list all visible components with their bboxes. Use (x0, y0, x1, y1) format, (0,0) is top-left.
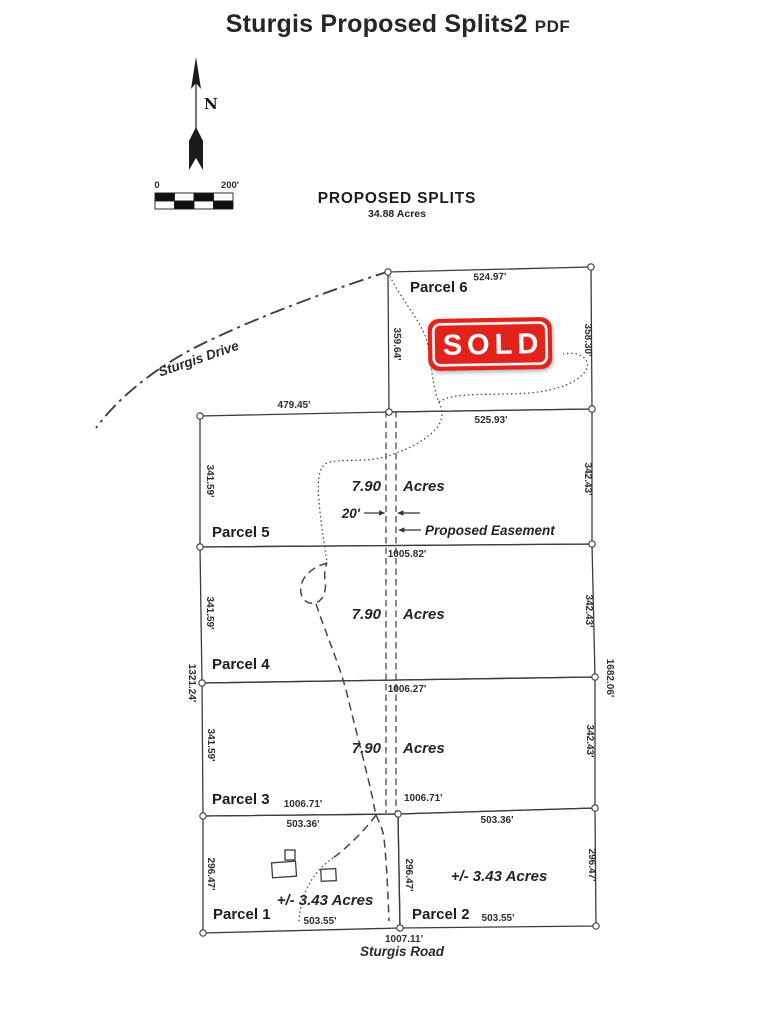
sturgis-road-label: Sturgis Road (360, 944, 445, 959)
scale-segment (194, 193, 214, 201)
parcel-2-east-dim: 296.47' (586, 849, 597, 882)
parcel-3-west-dim: 341.59' (205, 729, 216, 762)
scale-segment (194, 201, 214, 209)
parcel-5-west-dim: 341.59' (204, 465, 215, 498)
parcel-1-west-dim: 296.47' (205, 858, 216, 891)
corner-marker (397, 925, 403, 931)
corner-marker (588, 264, 594, 270)
parcel-3-label: Parcel 3 (212, 791, 270, 808)
north-arrow: N (189, 57, 218, 170)
scale-end-label: 200' (221, 180, 239, 191)
plat-total-acreage: 34.88 Acres (368, 208, 426, 220)
corner-marker (589, 406, 595, 412)
driveway-segment (376, 815, 389, 921)
driveway-dotted-tail (299, 858, 333, 922)
overall-west-dim: 1321.24' (186, 664, 197, 703)
parcel-3-southeast-dim: 1006.71' (404, 793, 443, 804)
parcel-4-east-dim: 342.43' (583, 595, 594, 628)
scale-bar: 0 200' (154, 180, 239, 209)
parcel-2-area: +/- 3.43 Acres (451, 868, 548, 885)
driveway-segment (333, 815, 376, 858)
north-label: N (204, 95, 218, 113)
parcel-4-label: Parcel 4 (212, 656, 270, 673)
parcel-2-label: Parcel 2 (412, 906, 470, 923)
corner-marker (592, 805, 598, 811)
sturgis-drive-label: Sturgis Drive (156, 338, 241, 380)
parcel-3-southwest-dim: 1006.71' (284, 799, 323, 810)
scale-segment (175, 193, 195, 201)
parcel-1-south-dim: 503.55' (304, 916, 337, 927)
parcel-5-area-value: 7.90 (352, 478, 382, 495)
sold-stamp: SOLD (428, 317, 553, 371)
corner-marker (199, 680, 205, 686)
easement-width-label: 20' (341, 506, 361, 521)
parcel-5-east-dim: 342.43' (582, 463, 593, 496)
corner-marker (386, 409, 392, 415)
corner-marker (197, 413, 203, 419)
building-outline (321, 869, 337, 882)
corner-marker (589, 541, 595, 547)
parcel-2-north-dim: 503.36' (481, 815, 514, 826)
parcel-5-label: Parcel 5 (212, 524, 270, 541)
parcel-3-area-value: 7.90 (352, 740, 382, 757)
sturgis-drive-road (96, 271, 390, 428)
parcel-6-west-dim: 359.64' (391, 328, 402, 361)
parcel-2-south-dim: 503.55' (482, 913, 515, 924)
north-arrow-fletching (189, 127, 203, 170)
parcel-4-area-value: 7.90 (352, 606, 382, 623)
scale-segment (214, 193, 234, 201)
parcel-4-west-dim: 341.59' (204, 597, 215, 630)
scale-segment (155, 193, 175, 201)
pdf-page: Sturgis Proposed Splits2PDF N 0 200' PRO… (0, 0, 763, 1024)
parcel-6-east-dim: 358.30' (582, 324, 593, 357)
corner-marker (200, 813, 206, 819)
parcel-6-label: Parcel 6 (410, 279, 468, 296)
corner-marker (395, 811, 401, 817)
parcel-1-buildings (272, 850, 337, 881)
parcel-divider-dim: 296.47' (403, 859, 414, 892)
corner-marker (197, 544, 203, 550)
parcel-5-northeast-dim: 525.93' (475, 415, 508, 426)
parcel-6-north-dim: 524.97' (473, 272, 506, 284)
easement-width-callout: 20' (341, 506, 420, 521)
parcel-1-area: +/- 3.43 Acres (277, 892, 374, 909)
driveway-loop (301, 563, 327, 603)
corner-marker (592, 674, 598, 680)
proposed-easement-label: Proposed Easement (425, 523, 555, 538)
parcel-5-south-dim: 1005.82' (388, 549, 427, 560)
driveway-segment (316, 604, 376, 815)
plat-drawing: N 0 200' PROPOSED SPLITS 34.88 Acres Stu… (0, 0, 763, 1024)
corner-marker (385, 269, 391, 275)
arrow-left-icon (398, 527, 405, 532)
arrow-left-icon (397, 510, 404, 515)
parcel-5-northwest-dim: 479.45' (278, 400, 311, 411)
scale-start-label: 0 (154, 180, 159, 191)
scale-segment (155, 201, 175, 209)
scale-segment (214, 201, 234, 209)
sold-label: SOLD (442, 328, 543, 362)
parcel-1-north-dim: 503.36' (287, 819, 320, 830)
corner-marker (593, 923, 599, 929)
parcel-1-label: Parcel 1 (213, 906, 271, 923)
corner-marker (200, 930, 206, 936)
arrow-right-icon (379, 510, 386, 515)
overall-east-dim: 1682.06' (604, 659, 615, 698)
proposed-easement-callout: Proposed Easement (398, 523, 555, 538)
parcel-4-area-unit: Acres (402, 606, 445, 623)
plat-heading: PROPOSED SPLITS (318, 190, 476, 207)
building-outline (272, 861, 297, 878)
parcel-3-east-dim: 342.43' (584, 725, 595, 758)
scale-segment (175, 201, 195, 209)
building-outline (285, 850, 295, 860)
parcel-4-south-dim: 1006.27' (388, 684, 427, 695)
parcel-3-area-unit: Acres (402, 740, 445, 757)
parcel-5-area-unit: Acres (402, 478, 445, 495)
